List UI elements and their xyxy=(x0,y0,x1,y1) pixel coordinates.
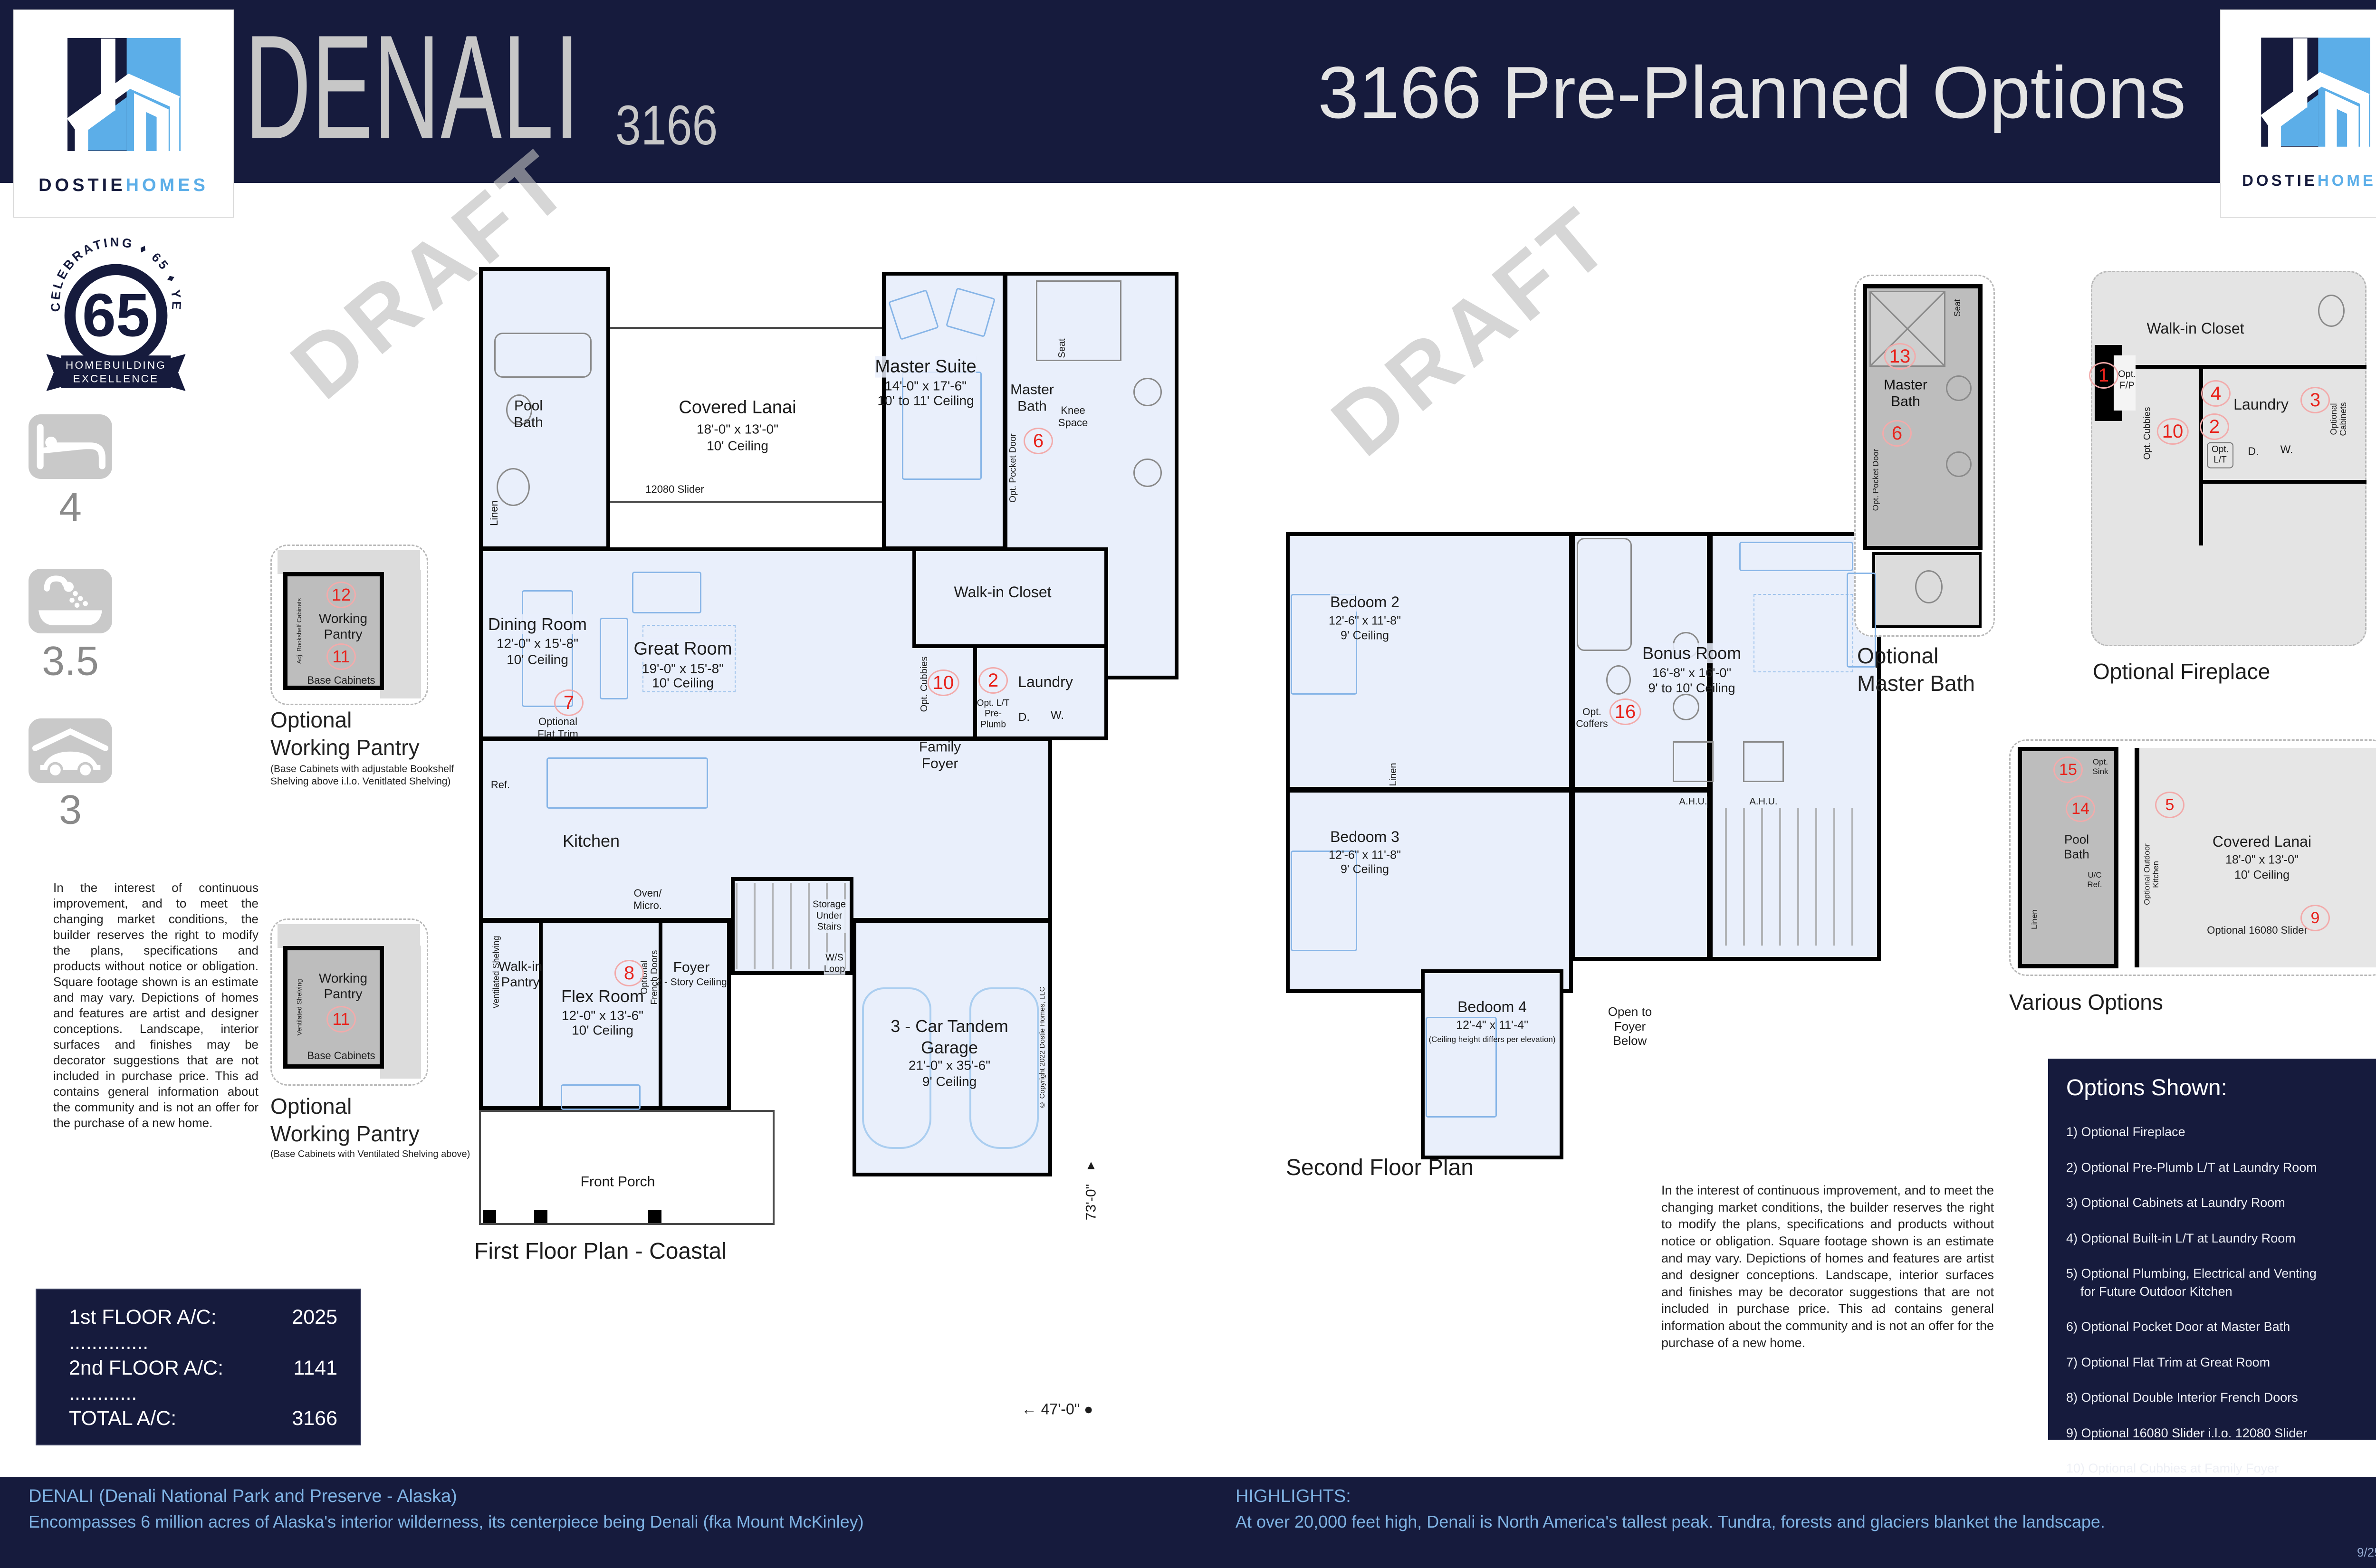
label-master-bath: Master Bath xyxy=(1010,382,1054,415)
wall xyxy=(2124,365,2366,369)
label-foyer: Foyer xyxy=(673,959,710,975)
stats-row: 1st FLOOR A/C: ..............2025 xyxy=(69,1305,337,1356)
sofa xyxy=(561,1084,641,1110)
pantry-room-label: Working Pantry xyxy=(319,970,367,1002)
label-ofp-laundry: Laundry xyxy=(2233,396,2289,414)
ahu-closet xyxy=(1673,741,1714,782)
option-item: 5) Optional Plumbing, Electrical and Ven… xyxy=(2066,1265,2374,1300)
option-item: 4) Optional Built-in L/T at Laundry Room xyxy=(2066,1230,2374,1247)
stats-row: TOTAL A/C: .....................3166 xyxy=(69,1406,337,1457)
option-item: 2) Optional Pre-Plumb L/T at Laundry Roo… xyxy=(2066,1159,2374,1176)
option-num-2: 2 xyxy=(978,667,1008,694)
stat-value: 3166 xyxy=(292,1406,337,1457)
label-slider: 12080 Slider xyxy=(645,483,704,496)
label-ofp-washer: W. xyxy=(2280,443,2293,456)
label-garage-ceiling: 9' Ceiling xyxy=(922,1073,977,1089)
label-ofp-cabinets: Optional Cabinets xyxy=(2329,402,2348,436)
stat-value: 2025 xyxy=(292,1305,337,1356)
dim-height: 73'-0" xyxy=(1083,1184,1099,1220)
logo-tile-right: DOSTIEHOMES xyxy=(2220,10,2376,218)
label-bedroom3: Bedoom 3 xyxy=(1330,828,1399,846)
bed-icon xyxy=(29,414,112,479)
label-master-suite: Master Suite xyxy=(875,356,976,378)
label-bedroom4-note: (Ceiling height differs per elevation) xyxy=(1428,1035,1555,1044)
option-num-15: 15 xyxy=(2053,756,2083,783)
sink xyxy=(1946,451,1972,477)
label-ofp-wic: Walk-in Closet xyxy=(2146,320,2244,338)
option-num-16: 16 xyxy=(1610,698,1641,725)
label-linen: Linen xyxy=(1388,763,1399,786)
label-walkin-pantry: Walk-in Pantry xyxy=(498,958,542,990)
kitchen-island xyxy=(546,757,708,809)
options-shown-panel: Options Shown: 1) Optional Fireplace 2) … xyxy=(2048,1059,2376,1440)
label-opt-lt: Opt. L/T Pre- Plumb xyxy=(977,698,1010,730)
dim-width: ← 47'-0" ● xyxy=(1022,1382,1093,1418)
footer-highlights-title: HIGHLIGHTS: xyxy=(1236,1486,1351,1507)
label-opt-coffers: Opt. Coffers xyxy=(1576,707,1608,730)
pantry-base-label: Base Cabinets xyxy=(307,1050,375,1062)
wall xyxy=(659,919,662,1110)
label-copyright: © Copyright 2022 Dostie Homes, LLC xyxy=(1039,986,1047,1109)
area-front-porch xyxy=(479,1110,775,1225)
label-great-ceiling: 10' Ceiling xyxy=(652,675,714,690)
sink xyxy=(1133,459,1162,487)
garage-count: 3 xyxy=(59,786,82,834)
toilet xyxy=(2318,295,2345,327)
porch-column xyxy=(648,1210,661,1223)
label-open-to-foyer: Open to Foyer Below xyxy=(1608,1004,1652,1048)
option-num-4: 4 xyxy=(2201,380,2231,407)
option-num-6: 6 xyxy=(1882,420,1912,447)
option-num-11: 11 xyxy=(326,643,356,670)
option-num-14: 14 xyxy=(2066,795,2095,822)
label-omb-seat: Seat xyxy=(1953,299,1963,316)
sofa xyxy=(632,572,701,613)
stats-panel: 1st FLOOR A/C: ..............2025 2nd FL… xyxy=(36,1289,361,1445)
dim-height-arrow: ▲ xyxy=(1085,1158,1097,1173)
65-years-badge-icon: CELEBRATING ♦ 65 ♦ YEARS ♦ OF 65 HOMEBUI… xyxy=(42,228,190,391)
option-item: 6) Optional Pocket Door at Master Bath xyxy=(2066,1318,2374,1336)
label-pool-bath: Pool Bath xyxy=(514,398,543,431)
car-icon xyxy=(29,718,112,783)
sofa xyxy=(600,618,628,699)
label-vo-slider: Optional 16080 Slider xyxy=(2207,924,2308,937)
label-bedroom2: Bedoom 2 xyxy=(1330,593,1399,612)
label-garage-size: 21'-0" x 35'-6" xyxy=(909,1057,990,1073)
option-num-13: 13 xyxy=(1884,343,1916,370)
label-great-size: 19'-0" x 15'-8" xyxy=(642,660,724,676)
option-item: 9) Optional 16080 Slider i.l.o. 12080 Sl… xyxy=(2066,1425,2374,1442)
draft-watermark: DRAFT xyxy=(1313,186,1631,476)
option-num-1: 1 xyxy=(2089,362,2118,389)
label-flex-ceiling: 10' Ceiling xyxy=(572,1022,633,1038)
label-ventilated-shelving: Ventilated Shelving xyxy=(492,936,501,1008)
option-item: 3) Optional Cabinets at Laundry Room xyxy=(2066,1194,2374,1212)
first-floor-caption: First Floor Plan - Coastal xyxy=(474,1238,727,1264)
label-bonus-size: 16'-8" x 16'-0" xyxy=(1652,666,1731,681)
option-item: 10) Optional Cubbies at Family Foyer xyxy=(2066,1460,2374,1477)
dim-width-arrow: ← xyxy=(1022,1400,1041,1417)
badge-ribbon-line1: HOMEBUILDING xyxy=(66,359,166,371)
baths-count: 3.5 xyxy=(42,637,99,685)
label-dryer: D. xyxy=(1018,711,1030,724)
footer-highlights-sub: At over 20,000 feet high, Denali is Nort… xyxy=(1236,1512,2105,1532)
label-kitchen: Kitchen xyxy=(563,831,620,851)
disclaimer-right: In the interest of continuous improvemen… xyxy=(1661,1182,1994,1351)
label-bedroom3-ceiling: 9' Ceiling xyxy=(1341,862,1389,877)
pantry-base-label: Base Cabinets xyxy=(307,674,375,687)
option-num-10: 10 xyxy=(2157,418,2189,445)
sink xyxy=(1133,378,1162,406)
label-great-room: Great Room xyxy=(634,639,732,660)
label-flex-room: Flex Room xyxy=(561,986,644,1006)
shower xyxy=(1036,280,1121,361)
label-bedroom2-ceiling: 9' Ceiling xyxy=(1341,629,1389,643)
beds-count: 4 xyxy=(59,483,82,531)
stat-value: 1141 xyxy=(294,1356,337,1406)
label-vo-pool-bath: Pool Bath xyxy=(2064,832,2089,861)
wall xyxy=(912,547,916,647)
brand-dostie: DOSTIE xyxy=(38,175,125,195)
label-ofp-cubbies: Opt. Cubbies xyxy=(2143,407,2153,460)
label-bedroom4: Bedoom 4 xyxy=(1457,998,1527,1016)
label-knee-space: Knee Space xyxy=(1058,404,1088,429)
option-num-10: 10 xyxy=(928,669,959,696)
wall xyxy=(2199,480,2366,484)
label-master-size: 14'-0" x 17'-6" xyxy=(885,378,967,393)
badge-ribbon-line2: EXCELLENCE xyxy=(73,373,159,384)
option-num-7: 7 xyxy=(554,689,584,716)
label-bonus-ceiling: 9' to 10' Ceiling xyxy=(1648,681,1735,696)
pantry-bottom-subcaption: (Base Cabinets with Ventilated Shelving … xyxy=(270,1149,470,1160)
pantry-bottom-caption: Optional Working Pantry xyxy=(270,1093,420,1147)
label-opt-pocket-door: Opt. Pocket Door xyxy=(1009,433,1019,503)
stat-label: 1st FLOOR A/C: .............. xyxy=(69,1305,292,1356)
pantry-side-label: Adj. Bookshelf Cabinets xyxy=(296,598,303,664)
label-ahu: A.H.U. xyxy=(1750,796,1778,808)
option-item: 8) Optional Double Interior French Doors xyxy=(2066,1389,2374,1406)
brand-dostie: DOSTIE xyxy=(2242,172,2318,189)
label-lanai: Covered Lanai xyxy=(679,397,796,419)
label-oven-micro: Oven/ Micro. xyxy=(633,887,662,912)
label-bonus: Bonus Room xyxy=(1642,643,1741,663)
sofa xyxy=(1739,542,1853,571)
option-num-11: 11 xyxy=(326,1006,356,1033)
flyer-page: DOSTIEHOMES DOSTIEHOMES DENALI 3166 3166… xyxy=(0,0,2376,1568)
option-num-5: 5 xyxy=(2155,792,2184,818)
label-laundry: Laundry xyxy=(1018,673,1073,691)
label-front-porch: Front Porch xyxy=(581,1173,655,1190)
pantry-bottom-surround xyxy=(380,946,421,1079)
label-garage: 3 - Car Tandem Garage xyxy=(891,1015,1008,1058)
dostie-homes-logo-icon xyxy=(57,28,191,161)
option-num-8: 8 xyxy=(614,960,644,986)
toilet xyxy=(1915,570,1943,603)
pantry-top-caption: Optional Working Pantry xyxy=(270,707,420,761)
label-vo-sink: Opt. Sink xyxy=(2092,757,2108,776)
stairs xyxy=(1725,808,1868,946)
options-shown-title: Options Shown: xyxy=(2048,1059,2376,1106)
label-seat: Seat xyxy=(1057,338,1067,358)
logo-tile-left: DOSTIEHOMES xyxy=(13,10,234,218)
optional-master-bath-caption: Optional Master Bath xyxy=(1857,642,1975,697)
stats-row: 2nd FLOOR A/C: ............1141 xyxy=(69,1356,337,1406)
footer-left-title: DENALI (Denali National Park and Preserv… xyxy=(29,1486,457,1507)
option-num-3: 3 xyxy=(2300,387,2330,413)
option-item: 7) Optional Flat Trim at Great Room xyxy=(2066,1354,2374,1371)
optional-fireplace-caption: Optional Fireplace xyxy=(2093,659,2270,684)
label-omb-pocket: Opt. Pocket Door xyxy=(1872,449,1881,511)
various-options-caption: Various Options xyxy=(2009,989,2163,1015)
pantry-top-subcaption: (Base Cabinets with adjustable Bookshelf… xyxy=(270,763,454,788)
label-ofp-dryer: D. xyxy=(2248,445,2259,458)
disclaimer-left: In the interest of continuous improvemen… xyxy=(53,880,259,1131)
tub xyxy=(494,333,592,378)
wall xyxy=(539,919,543,1110)
second-floor-caption: Second Floor Plan xyxy=(1286,1155,1474,1181)
label-vo-lanai-size: 18'-0" x 13'-0" xyxy=(2225,853,2299,867)
sink xyxy=(497,468,530,506)
option-num-6: 6 xyxy=(1024,428,1053,454)
bath-icon xyxy=(29,569,112,633)
label-walkin-closet: Walk-in Closet xyxy=(954,583,1051,602)
porch-column xyxy=(483,1210,496,1223)
label-ofp-fp: Opt. F/P xyxy=(2118,369,2136,391)
label-vo-linen: Linen xyxy=(2031,909,2040,929)
page-number: 9/25 xyxy=(2357,1545,2376,1560)
label-storage: Storage Under Stairs xyxy=(813,899,846,933)
dim-width-value: 47'-0" xyxy=(1041,1400,1080,1417)
label-family-foyer: Family Foyer xyxy=(919,739,961,773)
label-ahu: A.H.U. xyxy=(1679,796,1707,808)
ahu-closet xyxy=(1743,741,1784,782)
label-bedroom4-size: 12'-4" x 11'-4" xyxy=(1456,1018,1528,1033)
porch-column xyxy=(534,1210,547,1223)
brand-homes: HOMES xyxy=(126,175,209,195)
label-foyer-ceiling: 2 - Story Ceiling xyxy=(656,977,727,989)
dostie-homes-logo-icon xyxy=(2251,28,2376,156)
label-bedroom3-size: 12'-6" x 11'-8" xyxy=(1329,848,1401,862)
pantry-bottom-surround xyxy=(278,924,420,948)
dim-width-dot: ● xyxy=(1080,1400,1093,1417)
label-flat-trim: Optional Flat Trim xyxy=(537,716,578,740)
label-dining-size: 12'-0" x 15'-8" xyxy=(497,635,578,651)
label-omb-name: Master Bath xyxy=(1884,377,1927,411)
stat-label: TOTAL A/C: ..................... xyxy=(69,1406,292,1457)
option-num-2: 2 xyxy=(2200,413,2229,440)
plan-code: 3166 xyxy=(615,97,718,153)
sink xyxy=(1946,375,1972,401)
room-hall2 xyxy=(1571,789,1711,961)
label-dining: Dining Room xyxy=(488,614,587,634)
tub xyxy=(1577,538,1632,651)
label-vo-outdoor-kitchen: Optional Outdoor Kitchen xyxy=(2143,843,2160,905)
wall xyxy=(912,644,1108,648)
label-dining-ceiling: 10' Ceiling xyxy=(507,651,568,667)
option-num-12: 12 xyxy=(326,582,356,608)
label-ref: Ref. xyxy=(491,779,510,791)
badge-number: 65 xyxy=(82,282,150,350)
stat-label: 2nd FLOOR A/C: ............ xyxy=(69,1356,294,1406)
option-num-9: 9 xyxy=(2300,905,2330,931)
pantry-top-surround xyxy=(380,570,421,698)
label-bedroom2-size: 12'-6" x 11'-8" xyxy=(1329,614,1401,628)
label-linen: Linen xyxy=(489,500,500,526)
label-vo-ucref: U/C Ref. xyxy=(2087,870,2102,889)
wall xyxy=(2135,748,2139,967)
label-vo-lanai-ceiling: 10' Ceiling xyxy=(2234,868,2290,882)
label-washer: W. xyxy=(1051,709,1064,722)
brand-homes: HOMES xyxy=(2318,172,2376,189)
label-lanai-size: 18'-0" x 13'-0" xyxy=(697,421,778,437)
label-ofp-lt: Opt. L/T xyxy=(2207,442,2233,468)
option-item: 1) Optional Fireplace xyxy=(2066,1123,2374,1141)
footer-left-sub: Encompasses 6 million acres of Alaska's … xyxy=(29,1512,864,1532)
label-master-ceiling: 10' to 11' Ceiling xyxy=(877,392,974,408)
toilet xyxy=(1606,665,1631,695)
rug xyxy=(1753,594,1853,672)
sink xyxy=(1673,694,1699,720)
label-ws-loop: W/S Loop xyxy=(824,952,845,975)
label-lanai-ceiling: 10' Ceiling xyxy=(707,438,768,453)
pantry-side-label: Ventilated Shelving xyxy=(296,979,303,1035)
label-flex-size: 12'-0" x 13'-6" xyxy=(562,1007,643,1023)
pantry-room-label: Working Pantry xyxy=(319,611,367,642)
options-banner-title: 3166 Pre-Planned Options xyxy=(1045,52,2186,134)
label-vo-lanai: Covered Lanai xyxy=(2213,833,2311,851)
